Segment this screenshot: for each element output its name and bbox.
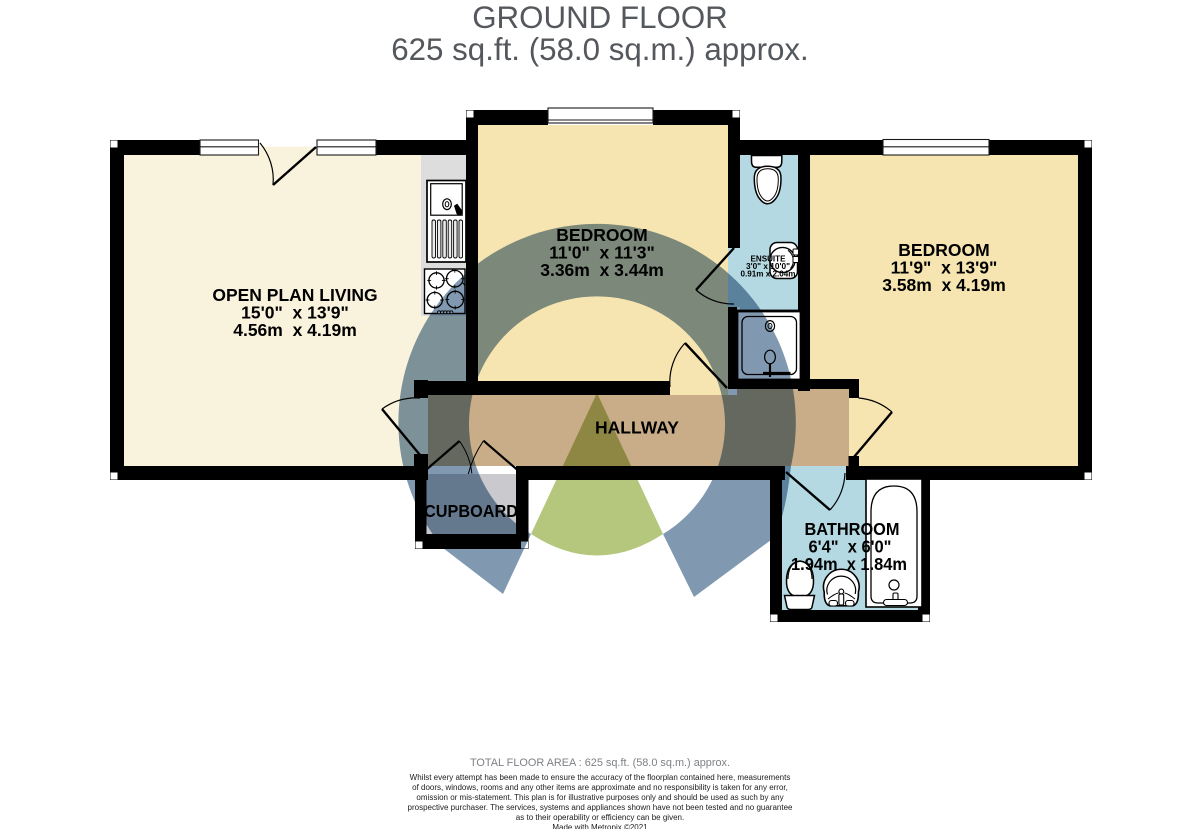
svg-text:omission or mis-statement. Thi: omission or mis-statement. This plan is … (416, 793, 783, 802)
svg-text:prospective purchaser. The ser: prospective purchaser. The services, sys… (408, 803, 794, 812)
svg-text:Made with Metropix ©2021: Made with Metropix ©2021 (552, 823, 648, 829)
svg-text:625 sq.ft. (58.0 sq.m.) approx: 625 sq.ft. (58.0 sq.m.) approx. (391, 32, 809, 67)
svg-text:Whilst every attempt has been: Whilst every attempt has been made to en… (410, 773, 791, 782)
svg-text:TOTAL FLOOR AREA : 625 sq.ft.: TOTAL FLOOR AREA : 625 sq.ft. (58.0 sq.m… (470, 757, 730, 769)
svg-text:3.58m x 4.19m: 3.58m x 4.19m (882, 275, 1006, 295)
svg-text:of doors, windows, rooms and a: of doors, windows, rooms and any other i… (412, 783, 788, 792)
svg-text:GROUND FLOOR: GROUND FLOOR (472, 0, 728, 35)
svg-text:1.94m x 1.84m: 1.94m x 1.84m (791, 554, 907, 574)
svg-text:0.91m x 2.04m: 0.91m x 2.04m (741, 270, 796, 279)
svg-text:4.56m x 4.19m: 4.56m x 4.19m (233, 320, 357, 340)
svg-text:as to their operability or eff: as to their operability or efficiency ca… (516, 813, 684, 822)
